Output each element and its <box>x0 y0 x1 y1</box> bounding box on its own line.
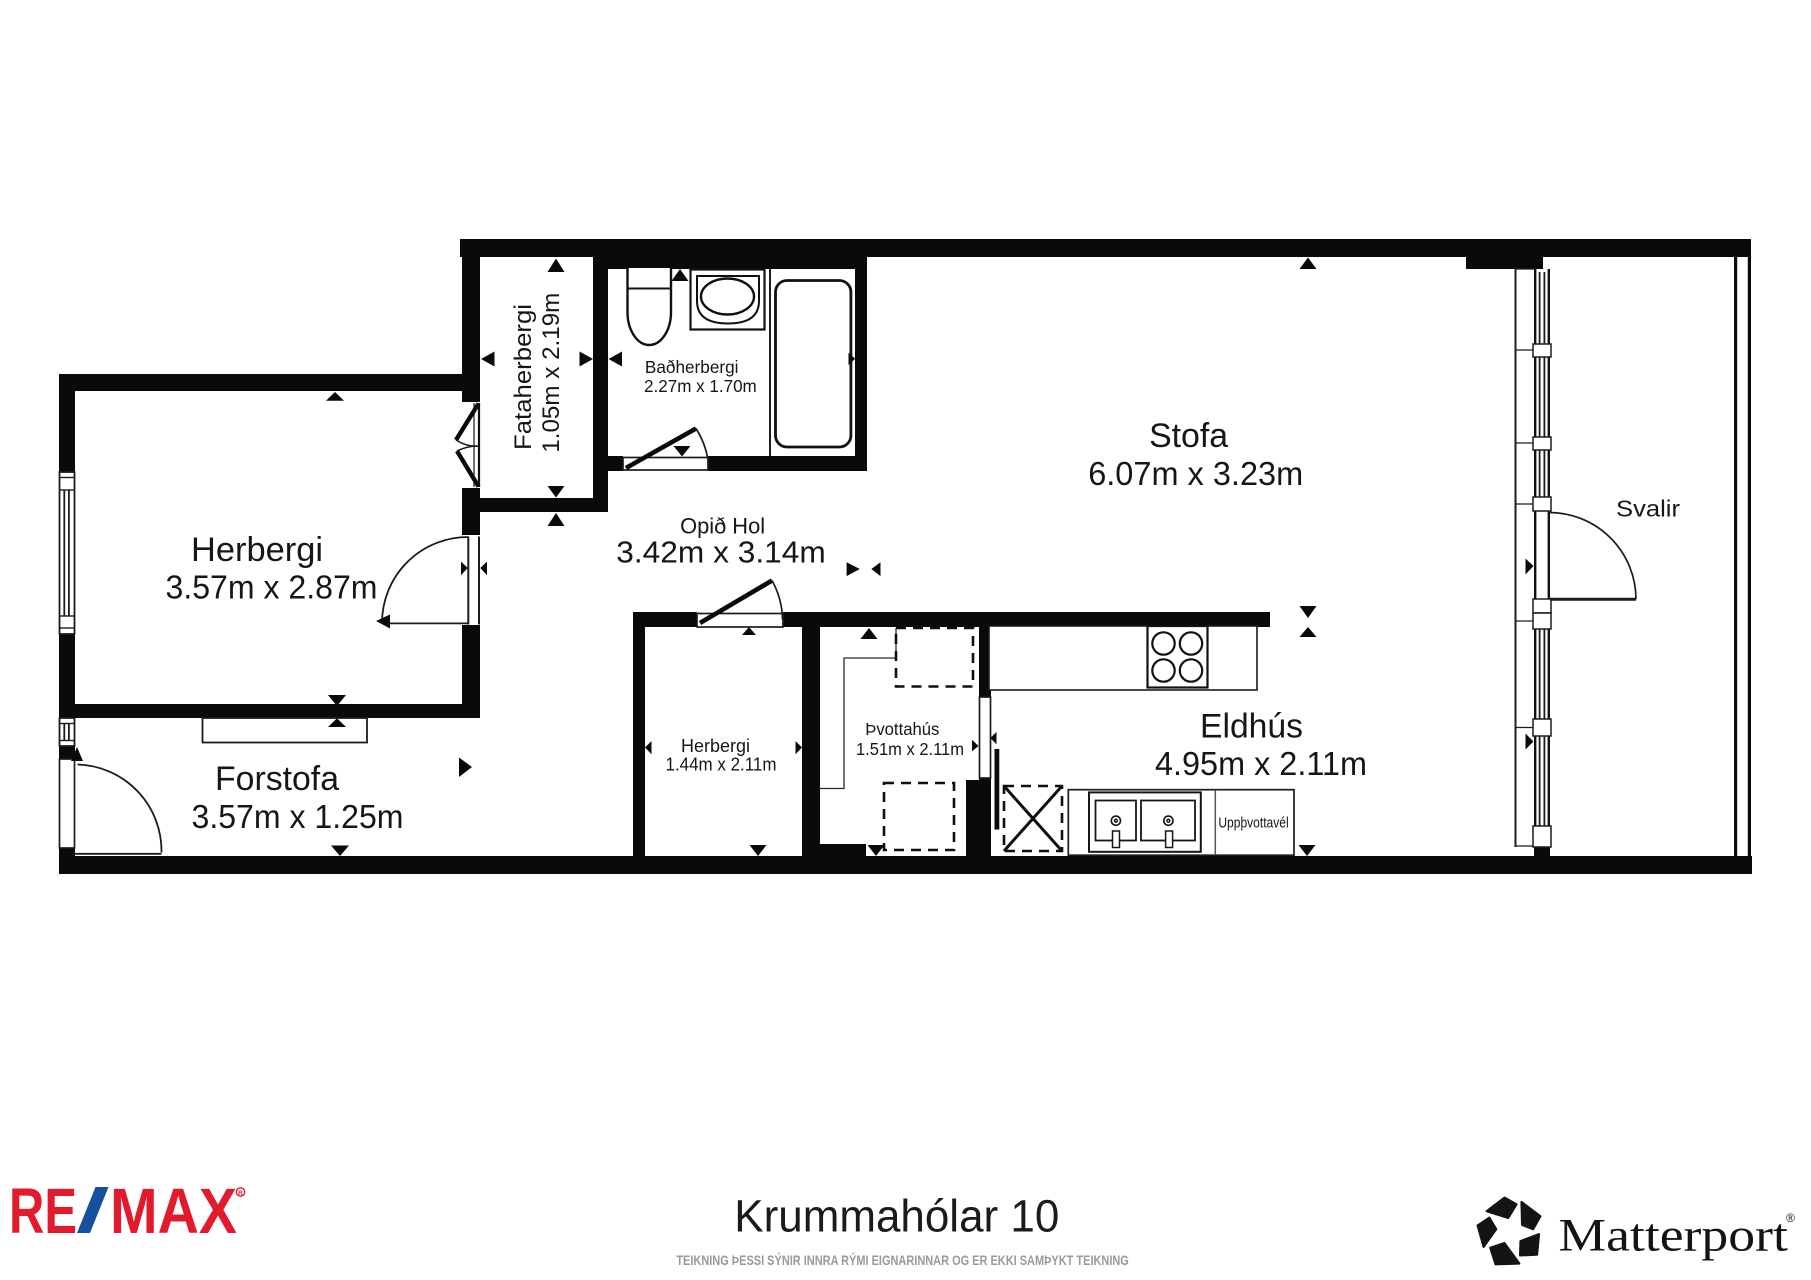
svg-text:3.42m x 3.14m: 3.42m x 3.14m <box>616 535 826 570</box>
svg-text:3.57m x 2.87m: 3.57m x 2.87m <box>166 568 378 605</box>
svg-text:RE: RE <box>9 1175 77 1247</box>
svg-text:3.57m x 1.25m: 3.57m x 1.25m <box>192 798 404 835</box>
svg-text:1.05m x 2.19m: 1.05m x 2.19m <box>538 293 565 453</box>
svg-text:6.07m x 3.23m: 6.07m x 3.23m <box>1088 455 1303 492</box>
svg-text:Baðherbergi: Baðherbergi <box>645 357 739 377</box>
svg-text:Matterport: Matterport <box>1558 1210 1788 1262</box>
svg-text:TEIKNING ÞESSI SÝNIR INNRA RÝM: TEIKNING ÞESSI SÝNIR INNRA RÝMI EIGNARIN… <box>676 1251 1129 1268</box>
svg-text:Svalir: Svalir <box>1616 496 1680 522</box>
svg-text:Krummahólar 10: Krummahólar 10 <box>734 1191 1059 1242</box>
svg-text:R: R <box>238 1190 243 1197</box>
svg-text:MAX: MAX <box>110 1175 237 1247</box>
svg-text:Fataherbergi: Fataherbergi <box>510 304 537 450</box>
svg-text:4.95m x 2.11m: 4.95m x 2.11m <box>1155 745 1367 782</box>
svg-text:1.51m x 2.11m: 1.51m x 2.11m <box>856 739 964 759</box>
svg-text:Eldhús: Eldhús <box>1200 708 1303 746</box>
svg-text:2.27m x 1.70m: 2.27m x 1.70m <box>644 376 757 396</box>
svg-text:Uppþvottavél: Uppþvottavél <box>1218 816 1288 832</box>
svg-text:1.44m x 2.11m: 1.44m x 2.11m <box>666 755 777 775</box>
svg-text:Þvottahús: Þvottahús <box>865 719 939 739</box>
svg-text:®: ® <box>1786 1211 1795 1225</box>
svg-text:Stofa: Stofa <box>1149 417 1228 455</box>
svg-text:Forstofa: Forstofa <box>215 760 339 798</box>
svg-text:Herbergi: Herbergi <box>191 531 323 569</box>
svg-text:Herbergi: Herbergi <box>681 736 750 756</box>
